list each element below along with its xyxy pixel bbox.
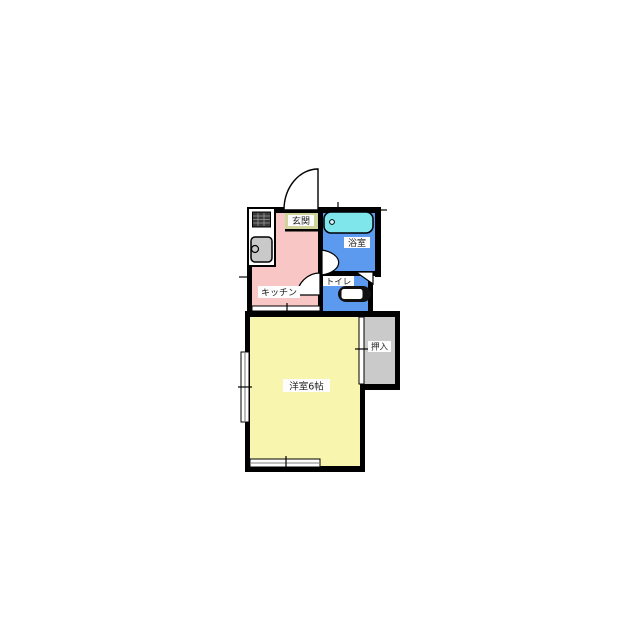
wall-kitchen-main-divider — [245, 311, 400, 317]
label-closet: 押入 — [371, 342, 389, 353]
bathtub-drain-icon — [330, 220, 335, 225]
label-kitchen: キッチン — [261, 288, 297, 299]
floor-plan-svg: 玄関 浴室 トイレ キッチン 洋室6帖 押入 — [0, 0, 640, 640]
floor-plan-image: 玄関 浴室 トイレ キッチン 洋室6帖 押入 — [0, 0, 640, 640]
faucet-icon — [252, 246, 259, 253]
bathtub — [324, 212, 373, 233]
kitchen-unit — [248, 208, 275, 266]
toilet-tank-icon — [342, 289, 363, 299]
label-main-room: 洋室6帖 — [289, 381, 324, 393]
label-toilet: トイレ — [326, 278, 352, 288]
wall-genkan-step — [285, 229, 321, 232]
wall-main-right — [360, 384, 365, 472]
label-genkan: 玄関 — [292, 215, 310, 227]
wall-bath-right — [375, 207, 381, 277]
wall-closet-right — [395, 311, 400, 390]
label-bathroom: 浴室 — [348, 237, 366, 249]
wall-closet-bottom — [362, 384, 400, 390]
toilet-fixture — [338, 286, 371, 302]
